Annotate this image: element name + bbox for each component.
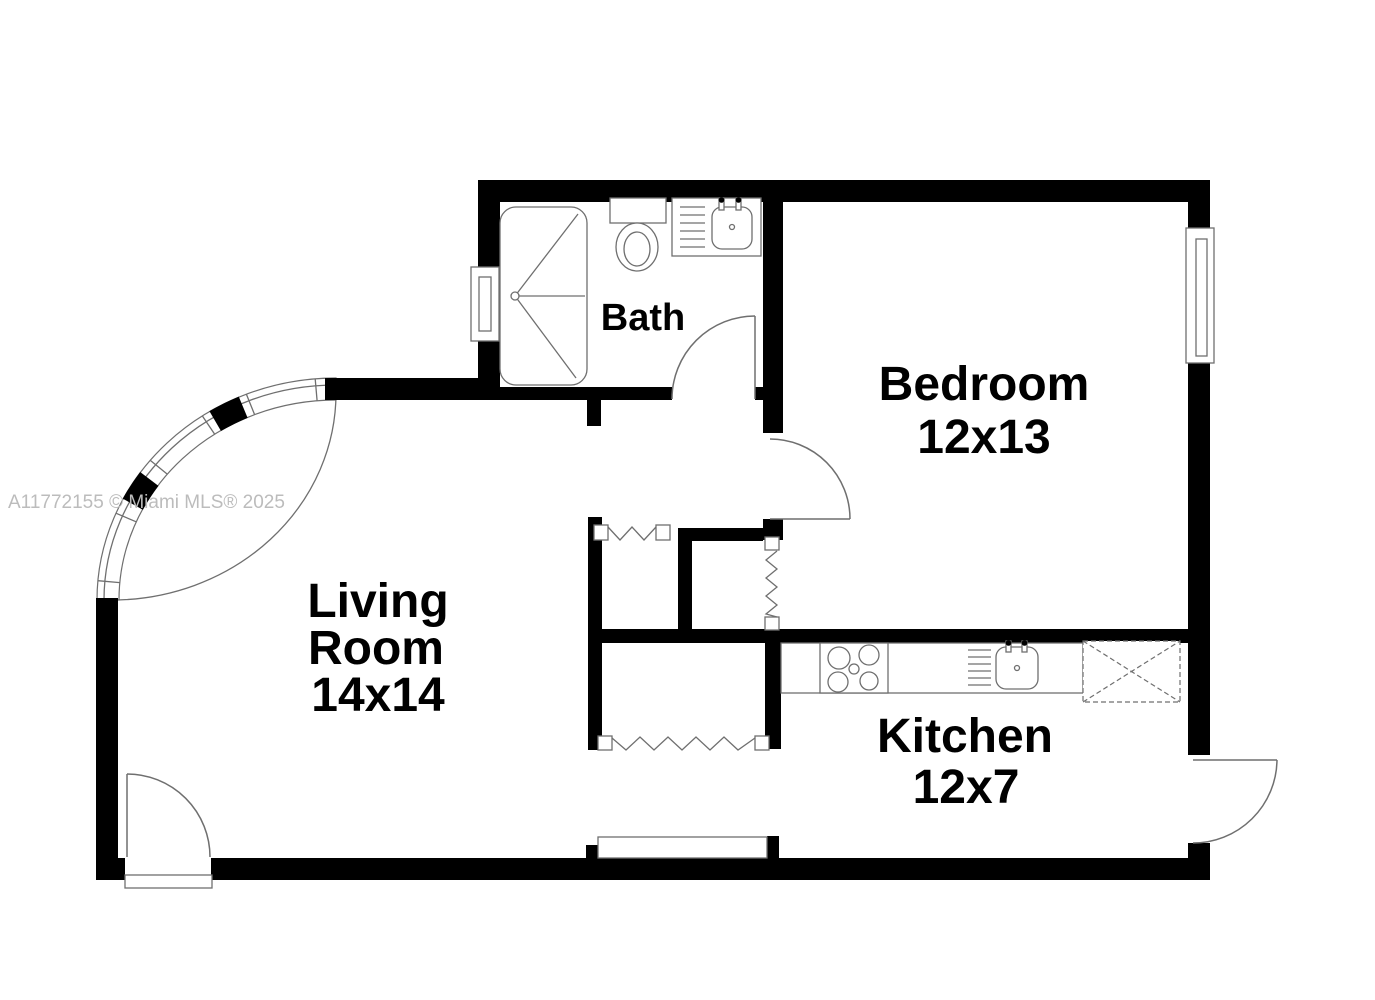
niche-left-stub	[586, 845, 598, 858]
door-jamb	[656, 525, 670, 540]
bedroom-label: Bedroom	[879, 358, 1090, 411]
bath-door-jamb-wall	[755, 387, 763, 400]
floor-plan: Bath Bedroom 12x13 Living Room 14x14 Kit…	[0, 0, 1375, 1000]
kitchen-label: Kitchen	[877, 710, 1053, 763]
faucet-handle	[719, 197, 725, 203]
living-room-label-line1: Living	[307, 575, 448, 628]
kitchen-sink-basin	[996, 647, 1038, 689]
toilet-tank	[610, 198, 666, 223]
niche-right-stub	[767, 836, 779, 858]
bedroom-window	[1186, 228, 1214, 363]
bottom-wall	[211, 858, 1210, 880]
kitchen-west-wall	[765, 643, 781, 749]
toilet-bowl	[616, 223, 658, 271]
bottom-wall-niche	[598, 837, 767, 858]
bath-label: Bath	[601, 297, 685, 339]
kitchen-north-wall	[588, 629, 1188, 643]
living-room-label-line2: Room	[308, 622, 444, 675]
door-jamb	[755, 736, 769, 750]
entry-threshold	[125, 875, 212, 888]
bedroom-size-label: 12x13	[917, 411, 1050, 464]
bath-sink-basin	[712, 207, 752, 249]
bedroom-west-wall	[763, 202, 783, 433]
bedroom-window-sash	[1196, 239, 1207, 356]
right-wall-upper	[1188, 180, 1210, 228]
wall-pier	[215, 407, 243, 421]
stove	[820, 643, 888, 693]
right-wall-middle	[1188, 363, 1210, 755]
shower-drain	[511, 292, 519, 300]
closet-divider-wall	[678, 528, 692, 629]
faucet-handle	[1022, 640, 1028, 646]
shower	[500, 207, 587, 385]
appliance-space	[1083, 641, 1180, 702]
bath-south-wall	[500, 387, 672, 400]
top-wall	[478, 180, 1210, 202]
kitchen-fixtures	[781, 640, 1180, 702]
bath-window	[471, 267, 499, 341]
mls-watermark: A11772155 © Miami MLS® 2025	[8, 492, 285, 513]
door-jamb	[765, 537, 779, 550]
living-room-top-wall	[325, 378, 500, 400]
hall-entry-north-stub	[587, 400, 601, 426]
faucet-handle	[1006, 640, 1012, 646]
left-wall	[96, 598, 118, 880]
door-jamb	[598, 736, 612, 750]
faucet-handle	[736, 197, 742, 203]
door-jamb	[765, 617, 779, 630]
door-jamb	[594, 525, 608, 540]
sink-vanity	[672, 197, 761, 256]
bath-west-wall-upper	[478, 180, 500, 267]
kitchen-size-label: 12x7	[913, 761, 1020, 814]
living-room-size-label: 14x14	[311, 669, 445, 722]
bath-window-sash	[479, 277, 491, 331]
